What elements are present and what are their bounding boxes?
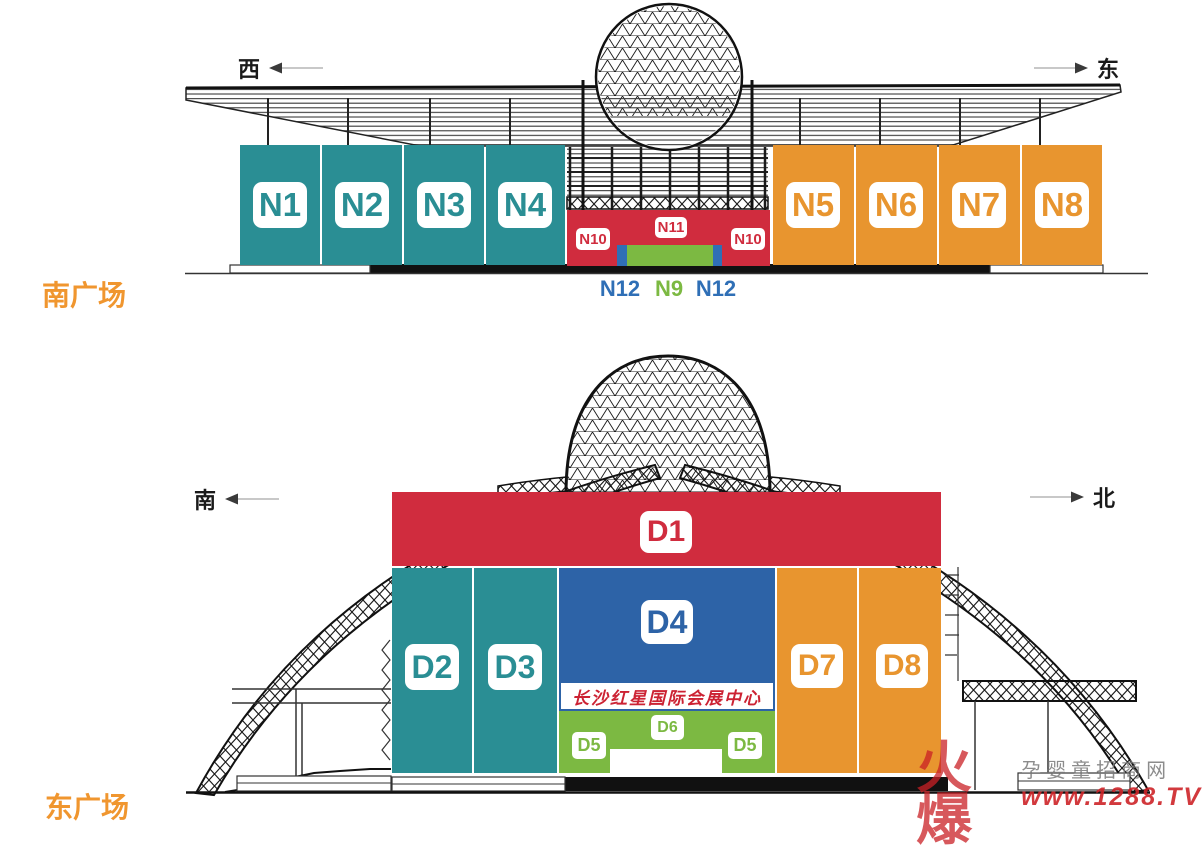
arrow-left-icon xyxy=(223,493,281,505)
zone-label-n1: N1 xyxy=(253,182,307,228)
zone-label-d7: D7 xyxy=(791,644,843,688)
direction-west-label: 西 xyxy=(238,52,260,84)
east-plaza-title: 东广场 xyxy=(45,786,129,826)
direction-east-label: 东 xyxy=(1097,52,1119,84)
zone-label-d2: D2 xyxy=(405,644,459,690)
ground-label-n12-left: N12 xyxy=(596,276,644,302)
zone-label-d8: D8 xyxy=(876,644,928,688)
direction-north: 北 xyxy=(1028,481,1115,513)
zone-label-n4: N4 xyxy=(498,182,552,228)
direction-south: 南 xyxy=(194,483,281,515)
south-plaza-title: 南广场 xyxy=(42,274,126,314)
direction-north-label: 北 xyxy=(1093,481,1115,513)
zone-label-n10-left: N10 xyxy=(576,228,610,250)
zone-label-n3: N3 xyxy=(417,182,471,228)
zone-label-n7: N7 xyxy=(952,182,1006,228)
zone-label-n10-right: N10 xyxy=(731,228,765,250)
exhibition-elevation-diagram: 西 东 南 北 南广场 东广场 N1 N2 N3 N4 N5 N6 N7 xyxy=(0,0,1202,847)
zone-label-d4: D4 xyxy=(641,600,693,644)
zone-label-n8: N8 xyxy=(1035,182,1089,228)
zone-label-d3: D3 xyxy=(488,644,542,690)
arrow-right-icon xyxy=(1032,62,1090,74)
watermark-url: www.1288.TV xyxy=(1021,783,1202,812)
watermark-site-name: 孕婴童招商网 xyxy=(1021,754,1202,783)
arrow-right-icon xyxy=(1028,491,1086,503)
entrance-door xyxy=(610,749,722,773)
watermark-brand: 火爆 xyxy=(916,742,1017,845)
venue-banner: 长沙红星国际会展中心 xyxy=(559,683,775,711)
zone-label-n11: N11 xyxy=(655,217,687,238)
direction-south-label: 南 xyxy=(194,483,216,515)
direction-east: 东 xyxy=(1032,52,1119,84)
ground-label-n12-right: N12 xyxy=(692,276,740,302)
zone-label-d5-right: D5 xyxy=(728,732,762,759)
watermark: 火爆 孕婴童招商网 www.1288.TV xyxy=(916,742,1202,845)
zone-n9 xyxy=(627,245,713,266)
zone-label-n6: N6 xyxy=(869,182,923,228)
zone-label-d6: D6 xyxy=(651,715,684,740)
ground-label-n9: N9 xyxy=(650,276,688,302)
arrow-left-icon xyxy=(267,62,325,74)
zone-label-n5: N5 xyxy=(786,182,840,228)
zone-n12-left xyxy=(617,245,627,266)
zone-n12-right xyxy=(713,245,722,266)
direction-west: 西 xyxy=(238,52,325,84)
zone-label-d5-left: D5 xyxy=(572,732,606,759)
zone-label-d1: D1 xyxy=(640,511,692,553)
zone-label-n2: N2 xyxy=(335,182,389,228)
